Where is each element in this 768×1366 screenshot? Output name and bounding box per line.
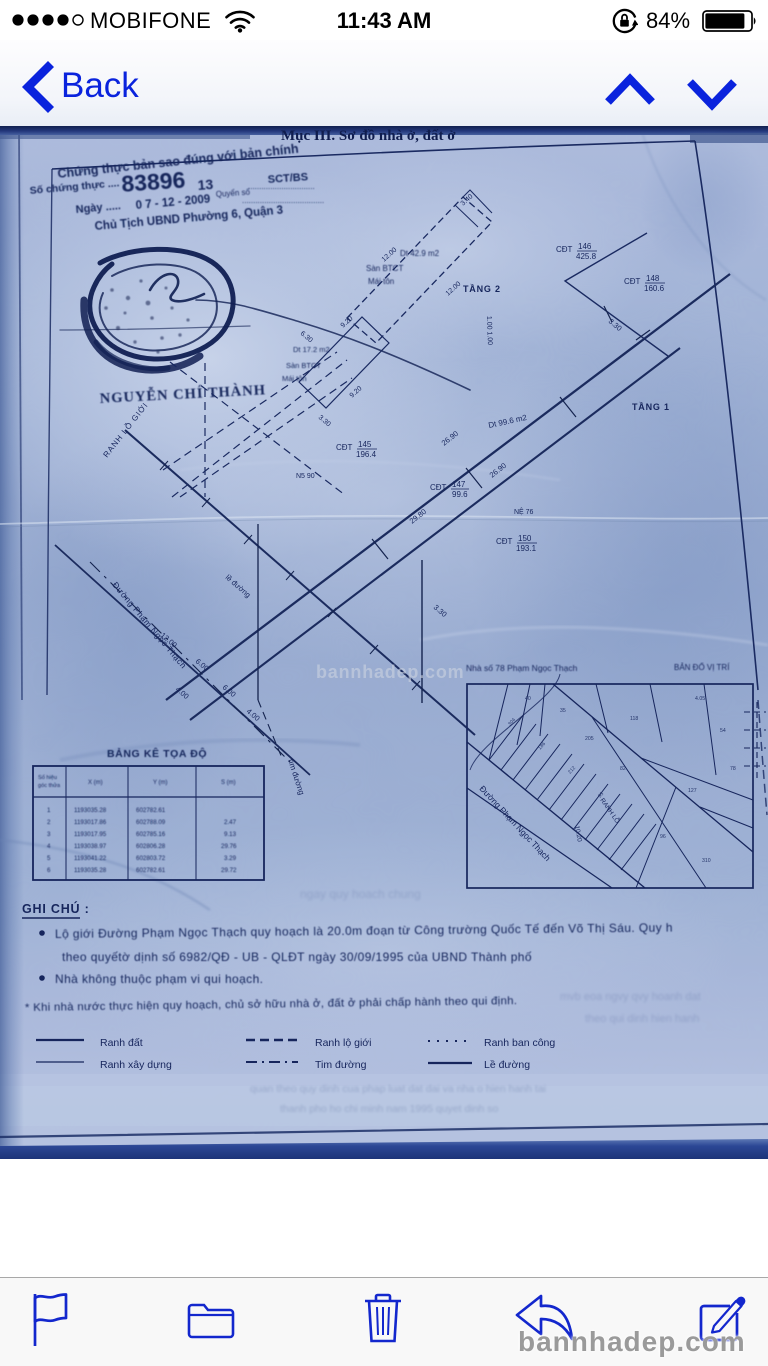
svg-text:S (m): S (m) [221,780,236,786]
svg-text:Lề đường: Lề đường [484,1059,530,1071]
svg-text:ngay quy hoach chung: ngay quy hoach chung [300,887,421,901]
svg-text:1: 1 [47,807,51,814]
svg-text:TẦNG 1: TẦNG 1 [632,402,670,412]
svg-text:148: 148 [646,274,660,283]
svg-text:CĐT: CĐT [430,483,447,492]
svg-text:96: 96 [660,834,666,840]
svg-text:thanh pho ho chi minh nam 1995: thanh pho ho chi minh nam 1995 quyet din… [280,1103,498,1115]
svg-text:bannhadep.com: bannhadep.com [316,662,464,682]
svg-text:54: 54 [720,728,726,734]
svg-text:4: 4 [47,843,51,850]
svg-text:Mục III. Sơ đồ nhà ở, đất ở: Mục III. Sơ đồ nhà ở, đất ở [281,128,456,144]
svg-text:Nhà số 78 Phạm Ngọc Thạch: Nhà số 78 Phạm Ngọc Thạch [466,663,578,673]
svg-text:mvb eoa ngvy qvy hoanh dat: mvb eoa ngvy qvy hoanh dat [560,991,701,1003]
svg-text:35: 35 [560,708,566,714]
svg-text:78: 78 [730,766,736,772]
svg-text:Y (m): Y (m) [153,780,168,786]
svg-text:118: 118 [630,716,638,722]
svg-text:13: 13 [197,176,214,193]
svg-text:193.1: 193.1 [516,544,537,553]
svg-text:CĐT: CĐT [336,443,353,452]
svg-text:9.13: 9.13 [224,831,237,838]
svg-text:1193035.28: 1193035.28 [74,807,107,814]
svg-text:Số hiệu: Số hiệu [38,775,57,781]
svg-text:..............................: ..................................... [242,196,324,205]
svg-text:602785.16: 602785.16 [136,831,166,838]
svg-text:602788.09: 602788.09 [136,819,166,826]
svg-text:Ranh đất: Ranh đất [100,1037,143,1049]
svg-text:quan theo quy dinh cua phap lu: quan theo quy dinh cua phap luat dat dai… [250,1083,546,1095]
svg-text:theo qui dinh hien hanh: theo qui dinh hien hanh [585,1013,699,1025]
svg-text:425.8: 425.8 [576,252,597,261]
svg-text:3.29: 3.29 [224,855,237,862]
svg-text:X (m): X (m) [88,780,103,786]
svg-text:CĐT: CĐT [556,245,573,254]
svg-text:NỆ 76: NỆ 76 [514,507,534,516]
svg-text:83896: 83896 [121,167,187,197]
svg-text:Dt 42.9 m2: Dt 42.9 m2 [400,249,440,258]
svg-text:602782.61: 602782.61 [136,807,166,814]
svg-text:Ranh lộ giới: Ranh lộ giới [315,1037,372,1049]
svg-text:150: 150 [518,534,532,543]
svg-text:145: 145 [358,440,372,449]
svg-text:29.72: 29.72 [221,867,237,874]
svg-text:1.00 1.00: 1.00 1.00 [485,316,493,346]
svg-text:CĐT: CĐT [496,537,513,546]
svg-text:N5 90: N5 90 [296,473,315,480]
svg-text:Dt 17.2 m2: Dt 17.2 m2 [293,345,330,354]
svg-text:127: 127 [688,788,697,794]
svg-text:29.76: 29.76 [221,843,237,850]
svg-text:146: 146 [578,242,592,251]
svg-text:góc thửa: góc thửa [38,782,61,789]
svg-text:Sàn BTCT: Sàn BTCT [366,264,403,273]
svg-text:310: 310 [702,858,711,864]
svg-text:1193041.22: 1193041.22 [74,855,107,862]
svg-text:6: 6 [47,867,51,874]
svg-text:Ranh xây dựng: Ranh xây dựng [100,1059,172,1071]
svg-text:BẢNG KÊ TỌA ĐỘ: BẢNG KÊ TỌA ĐỘ [107,747,207,760]
svg-text:1193017.95: 1193017.95 [74,831,107,838]
svg-text:3: 3 [47,831,51,838]
svg-text:GHI CHÚ :: GHI CHÚ : [22,901,90,916]
svg-text:2: 2 [47,819,51,826]
svg-text:205: 205 [585,736,594,742]
svg-text:4.05: 4.05 [695,696,705,702]
svg-text:40: 40 [525,696,531,702]
svg-text:Mái tôn: Mái tôn [368,277,394,286]
svg-text:99.6: 99.6 [452,490,468,499]
svg-text:82: 82 [620,766,626,772]
svg-text:TẦNG 2: TẦNG 2 [463,284,501,294]
svg-text:602782.61: 602782.61 [136,867,166,874]
svg-text:147: 147 [452,480,466,489]
svg-text:5: 5 [47,855,51,862]
svg-text:CĐT: CĐT [624,277,641,286]
svg-text:theo quyếtờ dịnh số 6982/QĐ -: theo quyếtờ dịnh số 6982/QĐ - UB - QLĐT … [62,950,532,964]
svg-text:Nhà không thuộc phạm vi qui ho: Nhà không thuộc phạm vi qui hoạch. [55,972,263,986]
svg-text:BẢN ĐỔ VỊ TRÍ: BẢN ĐỔ VỊ TRÍ [674,663,730,672]
svg-text:196.4: 196.4 [356,450,377,459]
svg-text:Ranh ban công: Ranh ban công [484,1037,555,1049]
svg-text:Tim đường: Tim đường [315,1059,367,1071]
svg-text:160.6: 160.6 [644,284,665,293]
svg-text:1193038.97: 1193038.97 [74,843,107,850]
svg-text:602806.28: 602806.28 [136,843,166,850]
svg-text:1193035.28: 1193035.28 [74,867,107,874]
svg-text:602803.72: 602803.72 [136,855,166,862]
svg-text:1193017.86: 1193017.86 [74,819,107,826]
svg-text:2.47: 2.47 [224,819,237,826]
